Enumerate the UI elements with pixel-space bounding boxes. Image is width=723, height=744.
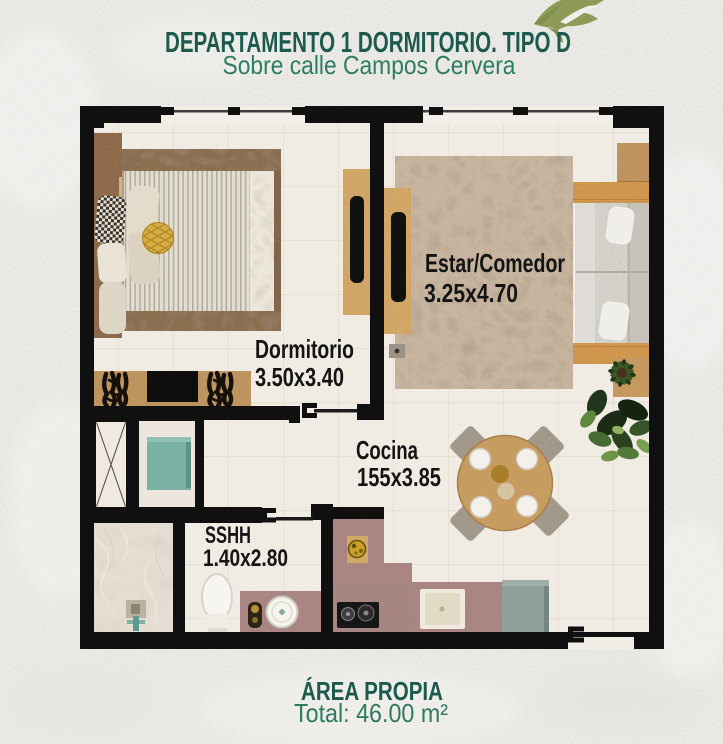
svg-text:Dormitorio: Dormitorio	[255, 334, 354, 364]
svg-text:Cocina: Cocina	[356, 435, 418, 465]
svg-text:3.25x4.70: 3.25x4.70	[424, 278, 518, 308]
svg-text:3.50x3.40: 3.50x3.40	[255, 362, 344, 392]
svg-text:Estar/Comedor: Estar/Comedor	[425, 248, 565, 278]
svg-text:1.40x2.80: 1.40x2.80	[203, 545, 288, 572]
svg-text:155x3.85: 155x3.85	[357, 462, 441, 492]
svg-text:Total: 46.00 m²: Total: 46.00 m²	[294, 698, 448, 728]
svg-text:Sobre calle Campos Cervera: Sobre calle Campos Cervera	[223, 50, 516, 80]
